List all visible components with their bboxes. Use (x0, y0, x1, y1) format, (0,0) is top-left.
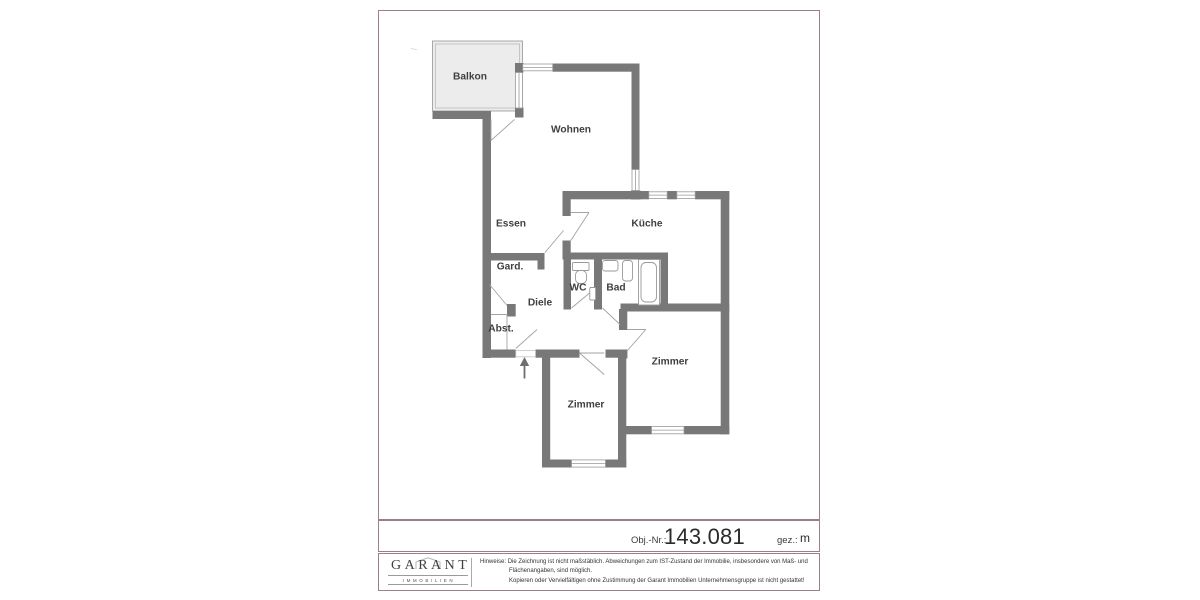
room-label-gard: Gard. (497, 262, 524, 273)
paper-artifact (411, 49, 417, 50)
bad-sink (603, 261, 619, 272)
room-label-zimmer-bottom: Zimmer (568, 400, 605, 411)
entrance-arrow-icon (520, 357, 529, 379)
door-abst (490, 285, 508, 306)
room-label-balkon: Balkon (453, 72, 487, 83)
door-kueche (571, 213, 589, 241)
logo-subtitle: IMMOBILIEN (388, 575, 468, 585)
footer: GARANT IMMOBILIEN Hinweise: Die Zeichnun… (378, 553, 820, 591)
disclaimer-label: Hinweise: (480, 559, 506, 565)
room-label-bad: Bad (606, 283, 625, 294)
door-entrance (516, 330, 537, 349)
room-label-diele: Diele (528, 298, 553, 309)
floorplan-drawing: Balkon Wohnen Essen Küche Gard. WC Bad D… (379, 11, 819, 519)
garant-logo: GARANT IMMOBILIEN (388, 558, 468, 585)
title-block: Obj.-Nr.: 143.081 gez.: m (378, 520, 820, 552)
bathtub-inner (641, 263, 657, 303)
door-zimmer-bottom (580, 353, 605, 375)
room-label-kueche: Küche (631, 219, 662, 230)
disclaimer-line-3: Kopieren oder Vervielfältigen ohne Zusti… (509, 577, 816, 586)
disclaimer-line-1: Hinweise: Die Zeichnung ist nicht maßstä… (480, 558, 816, 567)
footer-divider (471, 558, 472, 587)
room-label-wohnen: Wohnen (551, 125, 591, 136)
drawn-by-value: m (800, 531, 810, 545)
object-number-value: 143.081 (664, 524, 745, 550)
wc-sink (590, 288, 596, 301)
disclaimer-text: Hinweise: Die Zeichnung ist nicht maßstä… (480, 558, 816, 586)
door-bad (603, 308, 621, 325)
room-label-essen: Essen (496, 219, 526, 230)
object-number-label: Obj.-Nr.: (631, 535, 666, 546)
room-label-wc: WC (570, 283, 588, 294)
wc-toilet-tank (573, 263, 590, 271)
bad-toilet (623, 261, 633, 282)
room-label-abst: Abst. (488, 324, 514, 335)
floorplan-sheet: Balkon Wohnen Essen Küche Gard. WC Bad D… (378, 10, 820, 591)
disclaimer-line-2: Flächenangaben, sind möglich. (509, 567, 816, 576)
door-zimmer-right (628, 330, 646, 351)
plan-area: Balkon Wohnen Essen Küche Gard. WC Bad D… (378, 10, 820, 520)
door-essen (545, 231, 564, 253)
drawn-by-label: gez.: (777, 535, 798, 546)
room-label-zimmer-right: Zimmer (652, 357, 689, 368)
door-balcony (491, 120, 515, 141)
logo-wordmark: GARANT (388, 558, 468, 574)
